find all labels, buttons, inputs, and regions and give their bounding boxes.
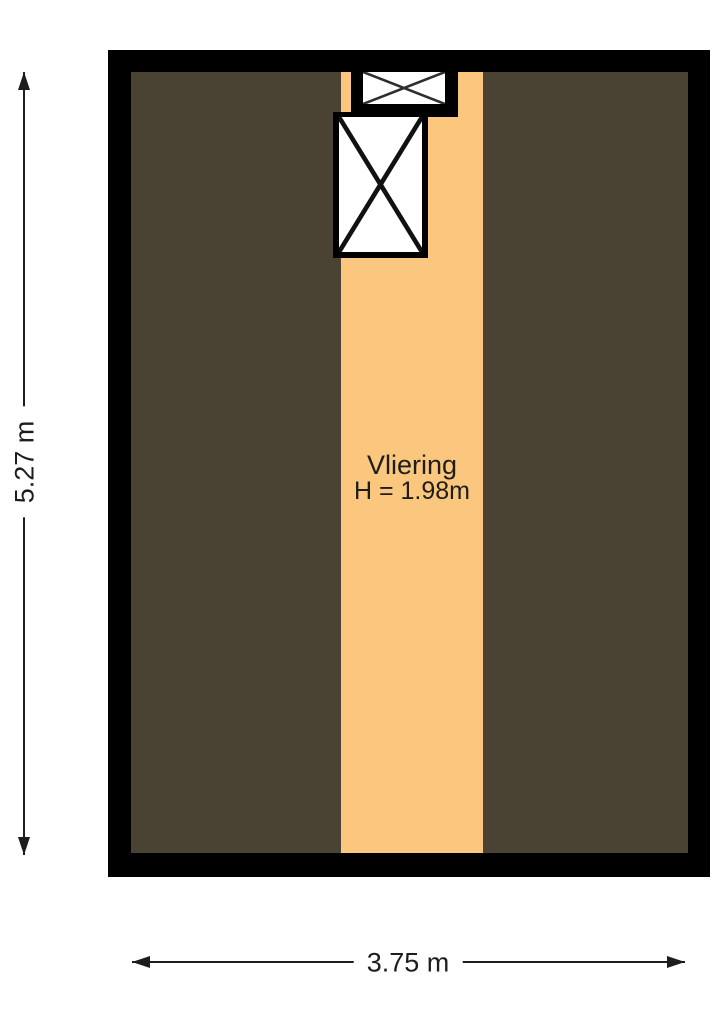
hatch-cross-icon xyxy=(363,72,445,104)
stair-cross-icon xyxy=(339,117,422,252)
room-ceiling-height: H = 1.98m xyxy=(341,478,483,504)
loft-hatch-symbol xyxy=(363,72,445,104)
horizontal-dimension-label: 3.75 m xyxy=(354,948,463,979)
room-label: Vliering H = 1.98m xyxy=(341,452,483,504)
vertical-dimension-label: 5.27 m xyxy=(10,407,41,518)
arrow-down-icon xyxy=(18,837,30,855)
arrow-right-icon xyxy=(667,956,685,968)
floorplan-canvas: Vliering H = 1.98m 5.27 m 3.75 m xyxy=(0,0,724,1024)
arrow-up-icon xyxy=(18,72,30,90)
room-name: Vliering xyxy=(341,452,483,478)
stair-opening-symbol xyxy=(339,117,422,252)
arrow-left-icon xyxy=(132,956,150,968)
